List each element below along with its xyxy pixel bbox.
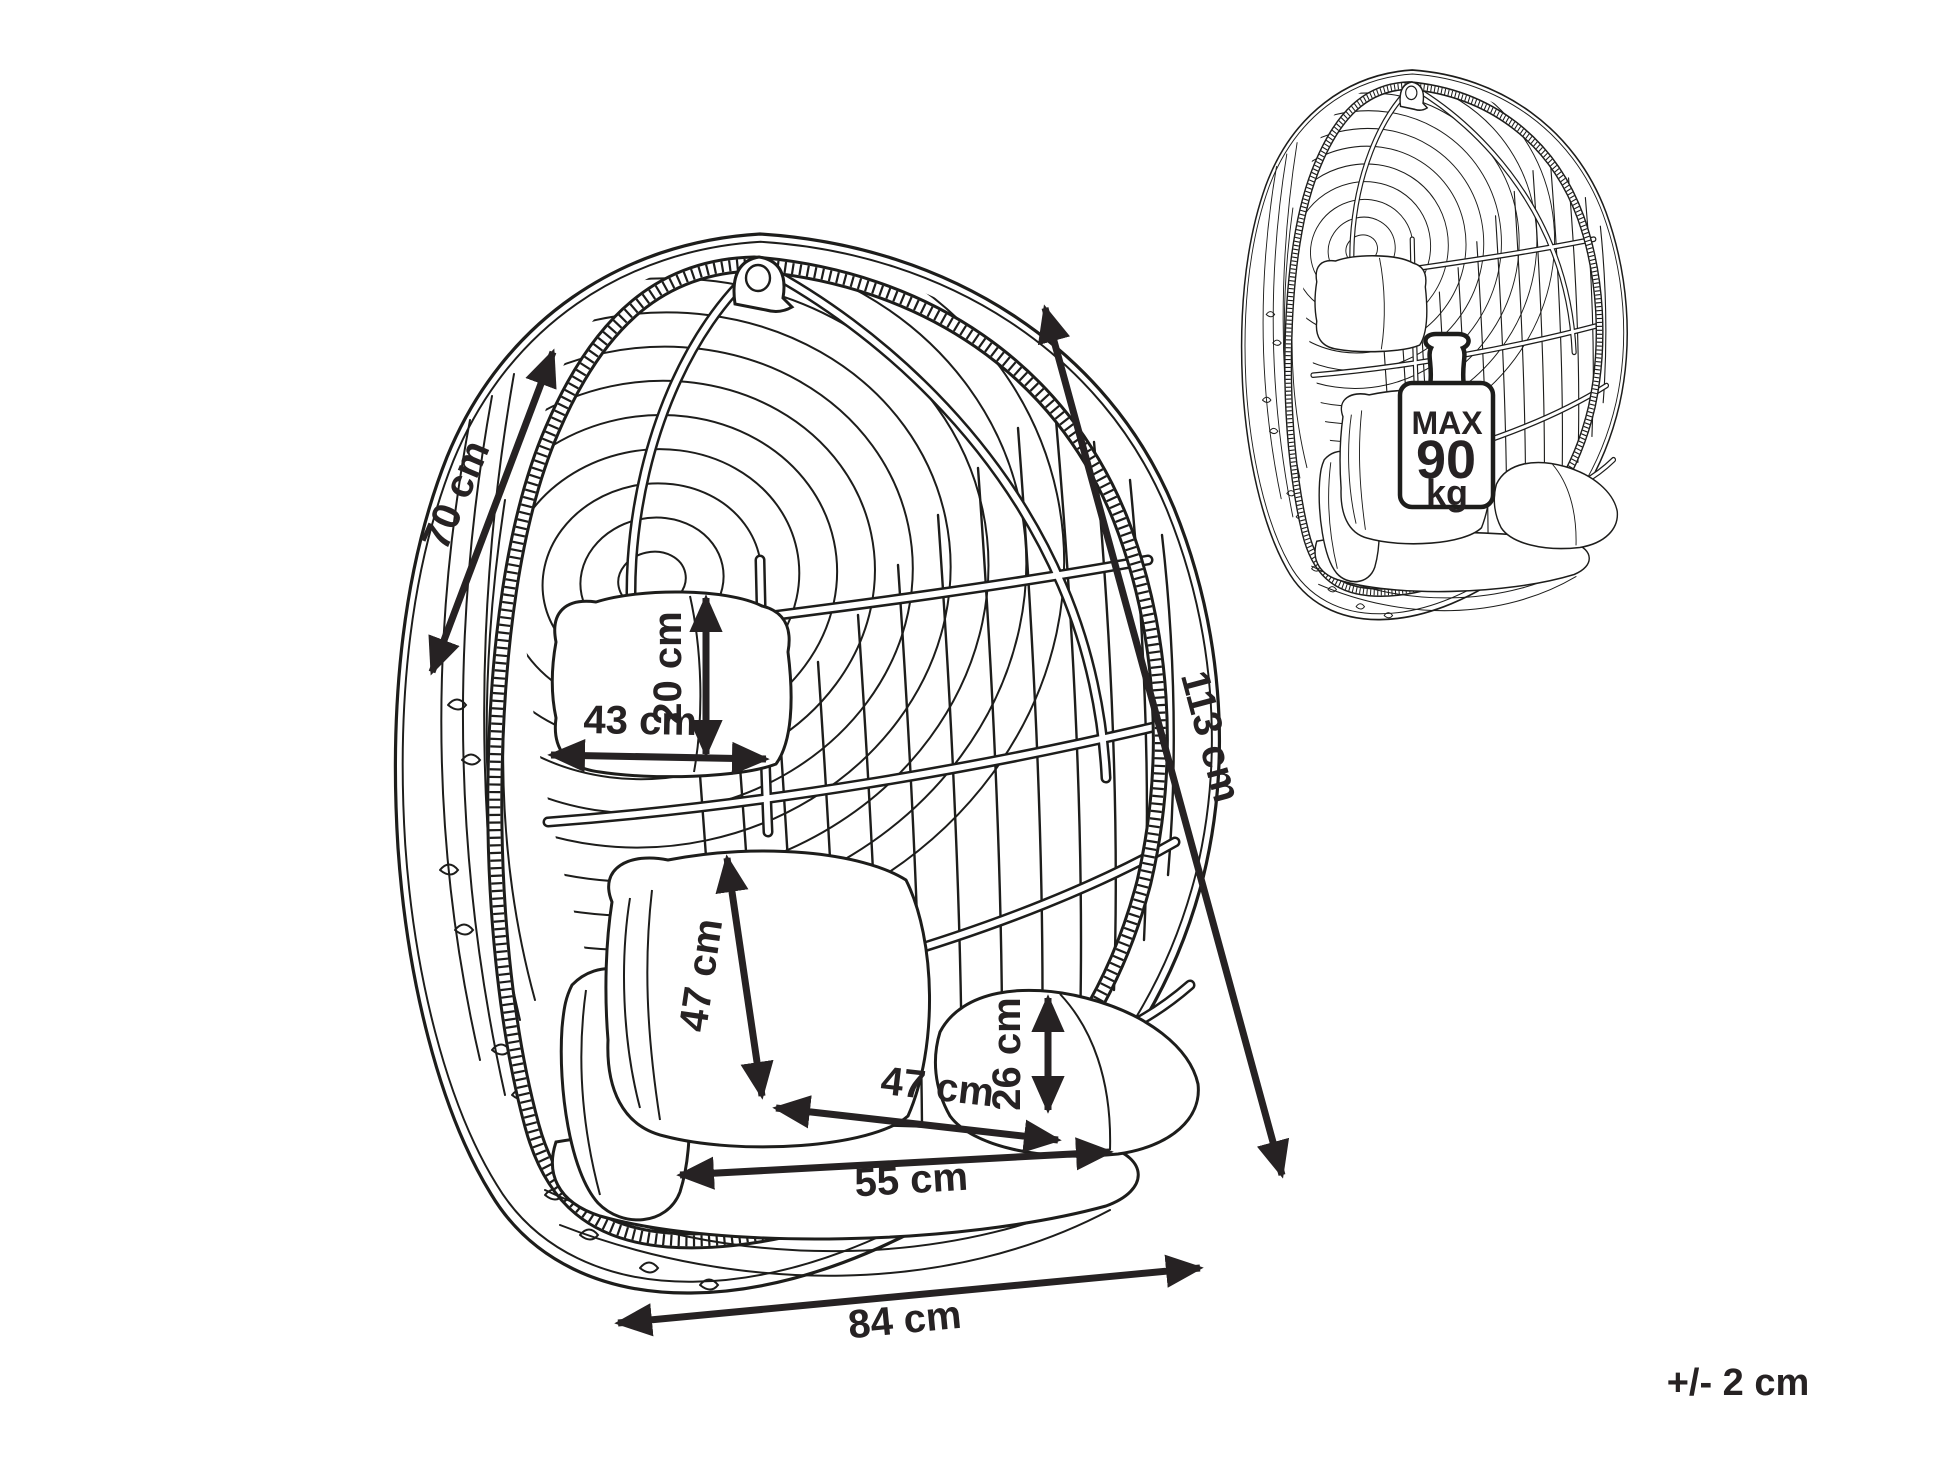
dim-width-label: 84 cm [846, 1293, 963, 1348]
dim-cushion-height-label: 26 cm [985, 997, 1029, 1110]
diagram-canvas: MAX 90 kg 70 cm 113 cm 84 cm 55 cm 47 cm… [0, 0, 1955, 1466]
inset-chair-illustration [1136, 18, 1627, 620]
dim-height-label: 113 cm [1172, 666, 1249, 806]
weight-knob [1425, 334, 1468, 386]
dim-pillow-width-label: 43 cm [583, 698, 697, 744]
tolerance-note: +/- 2 cm [1667, 1362, 1810, 1404]
dim-seat-width-label: 55 cm [853, 1155, 969, 1206]
dimension-diagram: MAX 90 kg 70 cm 113 cm 84 cm 55 cm 47 cm… [0, 0, 1955, 1466]
max-weight-unit: kg [1426, 472, 1468, 513]
